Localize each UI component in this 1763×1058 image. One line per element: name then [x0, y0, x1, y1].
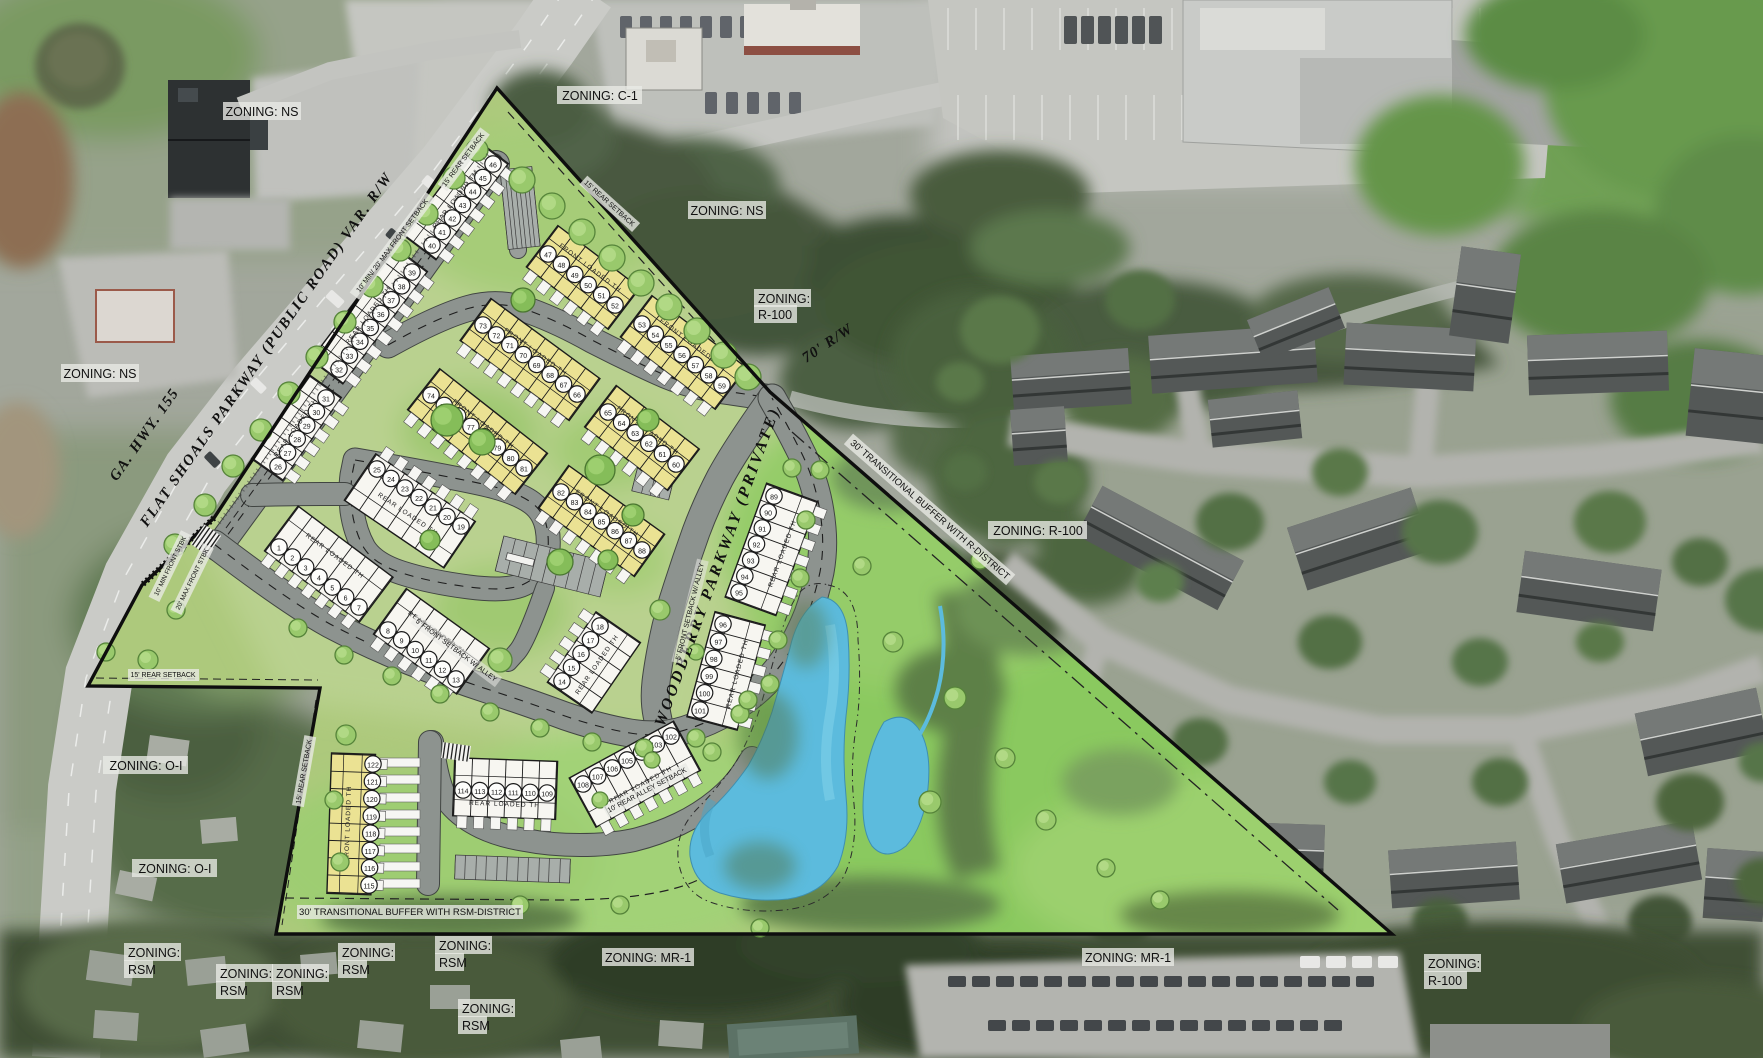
- svg-text:106: 106: [607, 766, 619, 773]
- svg-text:56: 56: [678, 353, 686, 360]
- svg-text:RSM: RSM: [220, 984, 248, 998]
- svg-text:8: 8: [386, 628, 390, 635]
- svg-text:110: 110: [525, 791, 536, 798]
- svg-text:25: 25: [373, 467, 381, 474]
- svg-text:99: 99: [705, 674, 713, 681]
- svg-text:R-100: R-100: [758, 308, 792, 322]
- svg-text:ZONING:: ZONING:: [220, 967, 272, 981]
- svg-text:28: 28: [293, 437, 301, 444]
- svg-text:96: 96: [719, 622, 727, 629]
- svg-text:37: 37: [387, 298, 395, 305]
- svg-text:ZONING:: ZONING:: [758, 292, 810, 306]
- svg-text:33: 33: [346, 354, 354, 361]
- svg-text:46: 46: [489, 162, 497, 169]
- svg-text:68: 68: [546, 373, 554, 380]
- svg-text:55: 55: [665, 343, 673, 350]
- svg-text:27: 27: [284, 451, 292, 458]
- svg-text:89: 89: [770, 494, 778, 501]
- svg-text:62: 62: [645, 442, 653, 449]
- svg-text:ZONING: NS: ZONING: NS: [64, 367, 137, 381]
- svg-text:12: 12: [439, 668, 447, 675]
- svg-text:9: 9: [400, 638, 404, 645]
- svg-text:ZONING: O-I: ZONING: O-I: [110, 759, 183, 773]
- svg-text:31: 31: [322, 396, 330, 403]
- svg-text:118: 118: [365, 832, 376, 839]
- svg-text:36: 36: [377, 312, 385, 319]
- svg-text:82: 82: [557, 490, 565, 497]
- svg-text:105: 105: [621, 758, 633, 765]
- svg-text:32: 32: [335, 367, 343, 374]
- svg-text:29: 29: [303, 424, 311, 431]
- svg-text:54: 54: [651, 333, 659, 340]
- svg-text:7: 7: [357, 605, 361, 612]
- svg-text:6: 6: [344, 595, 348, 602]
- svg-text:40: 40: [428, 243, 436, 250]
- svg-text:24: 24: [387, 477, 395, 484]
- svg-text:ZONING: NS: ZONING: NS: [691, 204, 764, 218]
- svg-text:64: 64: [618, 421, 626, 428]
- svg-text:RSM: RSM: [439, 956, 467, 970]
- svg-text:102: 102: [665, 734, 677, 741]
- svg-text:18: 18: [596, 624, 604, 631]
- svg-text:ZONING:: ZONING:: [128, 946, 180, 960]
- svg-text:ZONING:: ZONING:: [462, 1002, 514, 1016]
- svg-text:107: 107: [592, 774, 604, 781]
- svg-text:121: 121: [367, 780, 379, 787]
- svg-text:67: 67: [560, 383, 568, 390]
- svg-text:122: 122: [367, 762, 379, 769]
- svg-text:RSM: RSM: [276, 984, 304, 998]
- svg-text:ZONING:: ZONING:: [276, 967, 328, 981]
- svg-text:111: 111: [508, 790, 519, 797]
- svg-text:RSM: RSM: [342, 963, 370, 977]
- svg-text:112: 112: [491, 790, 502, 797]
- svg-text:95: 95: [735, 590, 743, 597]
- svg-text:35: 35: [366, 326, 374, 333]
- svg-text:86: 86: [611, 529, 619, 536]
- svg-text:72: 72: [493, 333, 501, 340]
- svg-text:109: 109: [541, 791, 553, 798]
- svg-text:97: 97: [715, 640, 723, 647]
- svg-text:30' TRANSITIONAL BUFFER WITH R: 30' TRANSITIONAL BUFFER WITH RSM-DISTRIC…: [299, 907, 521, 918]
- svg-text:15: 15: [568, 666, 576, 673]
- svg-text:ZONING:: ZONING:: [342, 946, 394, 960]
- svg-text:14: 14: [558, 679, 566, 686]
- svg-text:34: 34: [356, 340, 364, 347]
- svg-text:RSM: RSM: [128, 963, 156, 977]
- svg-text:22: 22: [415, 496, 423, 503]
- svg-text:16: 16: [577, 652, 585, 659]
- svg-text:ZONING: MR-1: ZONING: MR-1: [1085, 951, 1171, 965]
- svg-text:19: 19: [457, 524, 465, 531]
- svg-text:30: 30: [313, 410, 321, 417]
- svg-text:ZONING:: ZONING:: [1428, 957, 1480, 971]
- svg-text:91: 91: [758, 526, 766, 533]
- svg-text:88: 88: [638, 548, 646, 555]
- svg-text:60: 60: [672, 462, 680, 469]
- svg-text:101: 101: [694, 708, 706, 715]
- svg-text:71: 71: [506, 343, 514, 350]
- svg-text:41: 41: [438, 230, 446, 237]
- svg-text:26: 26: [274, 464, 282, 471]
- svg-text:48: 48: [557, 263, 565, 270]
- svg-text:119: 119: [366, 814, 377, 821]
- svg-text:4: 4: [317, 575, 321, 582]
- svg-text:43: 43: [459, 203, 467, 210]
- svg-text:58: 58: [705, 373, 713, 380]
- svg-text:49: 49: [571, 273, 579, 280]
- svg-text:116: 116: [364, 866, 375, 873]
- svg-text:113: 113: [474, 789, 485, 796]
- svg-text:ZONING: R-100: ZONING: R-100: [993, 524, 1083, 538]
- svg-text:52: 52: [611, 303, 619, 310]
- svg-text:47: 47: [544, 252, 552, 259]
- svg-text:ZONING: O-I: ZONING: O-I: [139, 862, 212, 876]
- svg-text:51: 51: [598, 293, 606, 300]
- svg-text:84: 84: [584, 510, 592, 517]
- svg-text:117: 117: [365, 849, 376, 856]
- svg-text:44: 44: [469, 189, 477, 196]
- svg-text:87: 87: [625, 539, 633, 546]
- svg-text:11: 11: [425, 658, 432, 665]
- svg-text:3: 3: [304, 565, 308, 572]
- svg-text:69: 69: [533, 363, 541, 370]
- svg-text:2: 2: [290, 555, 294, 562]
- svg-text:90: 90: [764, 510, 772, 517]
- svg-text:38: 38: [398, 284, 406, 291]
- svg-text:61: 61: [659, 452, 667, 459]
- svg-text:ZONING: MR-1: ZONING: MR-1: [605, 951, 691, 965]
- svg-text:93: 93: [747, 558, 755, 565]
- svg-text:21: 21: [429, 505, 437, 512]
- svg-text:5: 5: [330, 585, 334, 592]
- svg-text:1: 1: [277, 545, 281, 552]
- svg-text:108: 108: [577, 782, 589, 789]
- svg-text:13: 13: [452, 677, 460, 684]
- svg-text:66: 66: [573, 392, 581, 399]
- svg-text:20: 20: [443, 515, 451, 522]
- svg-text:15' REAR SETBACK: 15' REAR SETBACK: [130, 672, 195, 679]
- svg-text:65: 65: [604, 410, 612, 417]
- svg-text:ZONING: NS: ZONING: NS: [226, 105, 299, 119]
- svg-text:80: 80: [507, 456, 515, 463]
- svg-text:114: 114: [457, 788, 468, 795]
- svg-text:70: 70: [519, 353, 527, 360]
- svg-text:77: 77: [467, 425, 475, 432]
- svg-text:ZONING:: ZONING:: [439, 939, 491, 953]
- svg-text:ZONING: C-1: ZONING: C-1: [562, 89, 638, 103]
- svg-text:120: 120: [366, 797, 378, 804]
- svg-text:85: 85: [598, 519, 606, 526]
- svg-text:63: 63: [631, 431, 639, 438]
- svg-text:53: 53: [638, 322, 646, 329]
- svg-text:23: 23: [401, 486, 409, 493]
- svg-text:39: 39: [408, 270, 416, 277]
- svg-text:92: 92: [753, 542, 761, 549]
- svg-text:100: 100: [699, 691, 711, 698]
- svg-text:50: 50: [584, 283, 592, 290]
- svg-text:59: 59: [718, 383, 726, 390]
- svg-text:57: 57: [691, 363, 699, 370]
- svg-text:98: 98: [710, 657, 718, 664]
- svg-text:45: 45: [479, 176, 487, 183]
- svg-text:74: 74: [427, 393, 435, 400]
- svg-text:115: 115: [363, 883, 374, 890]
- svg-text:42: 42: [448, 216, 456, 223]
- svg-text:94: 94: [741, 574, 749, 581]
- svg-text:R-100: R-100: [1428, 974, 1462, 988]
- svg-text:83: 83: [571, 500, 579, 507]
- svg-text:10: 10: [411, 648, 419, 655]
- svg-text:17: 17: [587, 638, 595, 645]
- svg-text:RSM: RSM: [462, 1019, 490, 1033]
- svg-text:81: 81: [520, 466, 528, 473]
- svg-text:73: 73: [479, 323, 487, 330]
